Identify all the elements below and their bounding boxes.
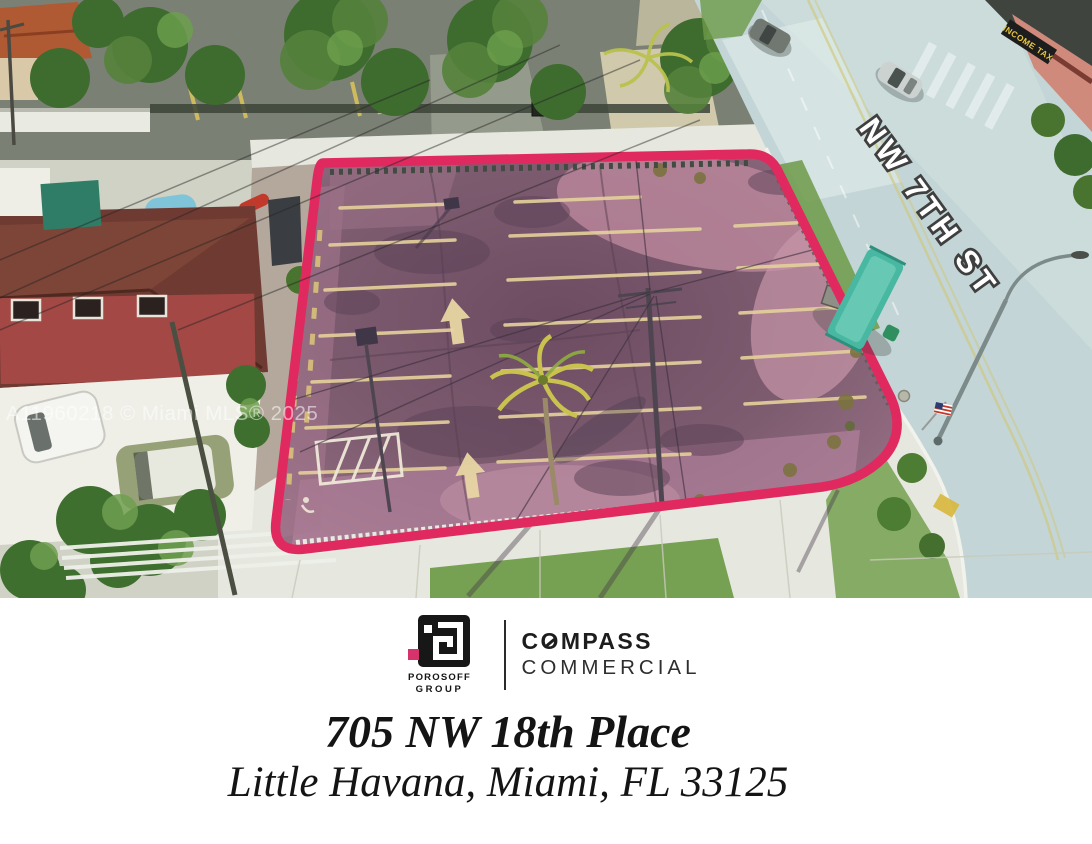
compass-commercial-label: COMMERCIAL (522, 658, 701, 679)
property-address: 705 NW 18th Place Little Havana, Miami, … (228, 709, 789, 805)
logo-row: POROSOFF GROUP COMPASS COMMERCIAL (392, 615, 701, 696)
compass-commercial-logo: COMPASS COMMERCIAL (522, 630, 701, 681)
compass-wordmark: COMPASS (522, 630, 701, 653)
porosoff-name-line2: GROUP (408, 684, 471, 696)
porosoff-pink-square (408, 649, 419, 660)
logo-divider (504, 620, 506, 690)
compass-letter-c: C (522, 628, 541, 654)
porosoff-maze-icon (408, 615, 472, 668)
manhole (899, 391, 910, 402)
compass-letters-mpass: MPASS (561, 628, 653, 654)
address-line1: 705 NW 18th Place (228, 709, 789, 755)
compass-slashed-o-icon: O (541, 630, 561, 653)
porosoff-name: POROSOFF GROUP (408, 672, 471, 696)
branding-footer: POROSOFF GROUP COMPASS COMMERCIAL 705 NW… (0, 598, 1092, 844)
porosoff-group-logo: POROSOFF GROUP (392, 615, 488, 696)
mls-watermark: A11960218 © Miami MLS® 2025 (6, 402, 318, 425)
aerial-photo: INCOME TAX (0, 0, 1092, 598)
white-fence-top-left (0, 108, 150, 132)
porosoff-name-line1: POROSOFF (408, 672, 471, 684)
address-line2: Little Havana, Miami, FL 33125 (228, 760, 789, 805)
listing-flyer: INCOME TAX (0, 0, 1092, 844)
